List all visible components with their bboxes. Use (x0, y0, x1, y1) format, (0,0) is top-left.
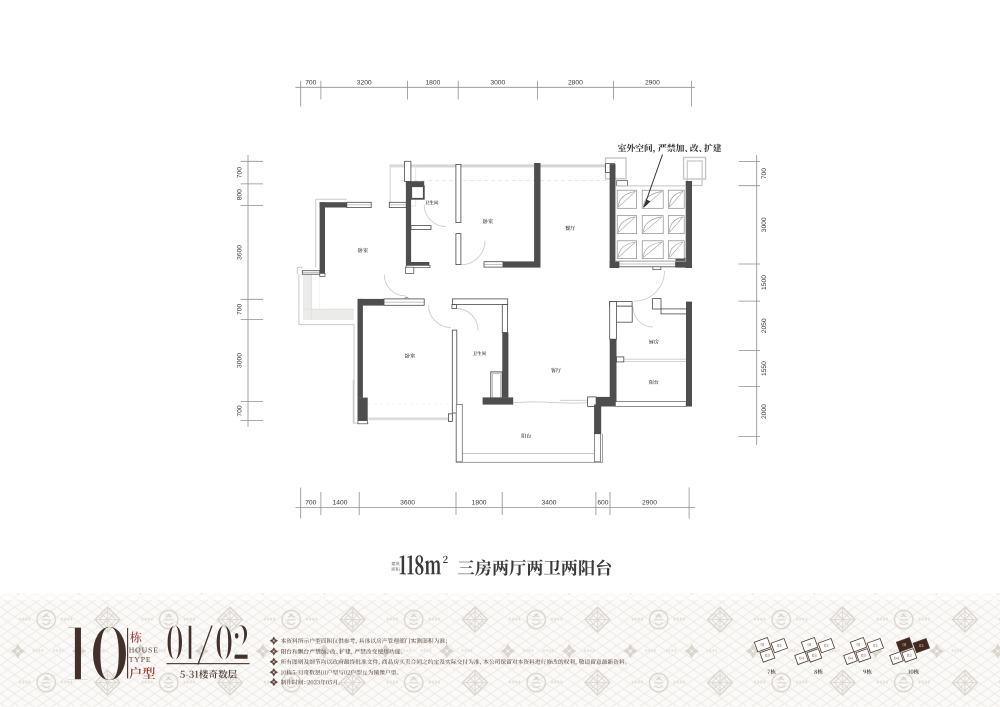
svg-text:1500: 1500 (761, 275, 768, 290)
svg-text:700: 700 (237, 405, 244, 416)
svg-text:3600: 3600 (237, 245, 244, 260)
svg-text:1550: 1550 (761, 361, 768, 376)
svg-text:1800: 1800 (472, 500, 487, 507)
svg-text:2050: 2050 (761, 318, 768, 333)
svg-text:700: 700 (237, 167, 244, 178)
svg-text:2000: 2000 (761, 404, 768, 419)
svg-text:3000: 3000 (761, 217, 768, 232)
svg-text:1800: 1800 (425, 80, 440, 87)
svg-text:3200: 3200 (357, 80, 372, 87)
svg-text:TYPE: TYPE (129, 655, 152, 664)
svg-text:3000: 3000 (237, 353, 244, 368)
svg-text:3600: 3600 (400, 500, 415, 507)
svg-text:3000: 3000 (490, 80, 505, 87)
svg-text:1400: 1400 (333, 500, 348, 507)
svg-text:2900: 2900 (645, 80, 660, 87)
svg-text:3400: 3400 (542, 500, 557, 507)
svg-text:2800: 2800 (568, 80, 583, 87)
svg-text:2900: 2900 (642, 500, 657, 507)
svg-text:700: 700 (305, 500, 316, 507)
svg-text:600: 600 (597, 500, 608, 507)
svg-text:HOUSE: HOUSE (129, 645, 159, 654)
svg-text:800: 800 (237, 189, 244, 200)
svg-text:700: 700 (237, 304, 244, 315)
svg-text:700: 700 (761, 168, 768, 179)
svg-text:700: 700 (305, 80, 316, 87)
